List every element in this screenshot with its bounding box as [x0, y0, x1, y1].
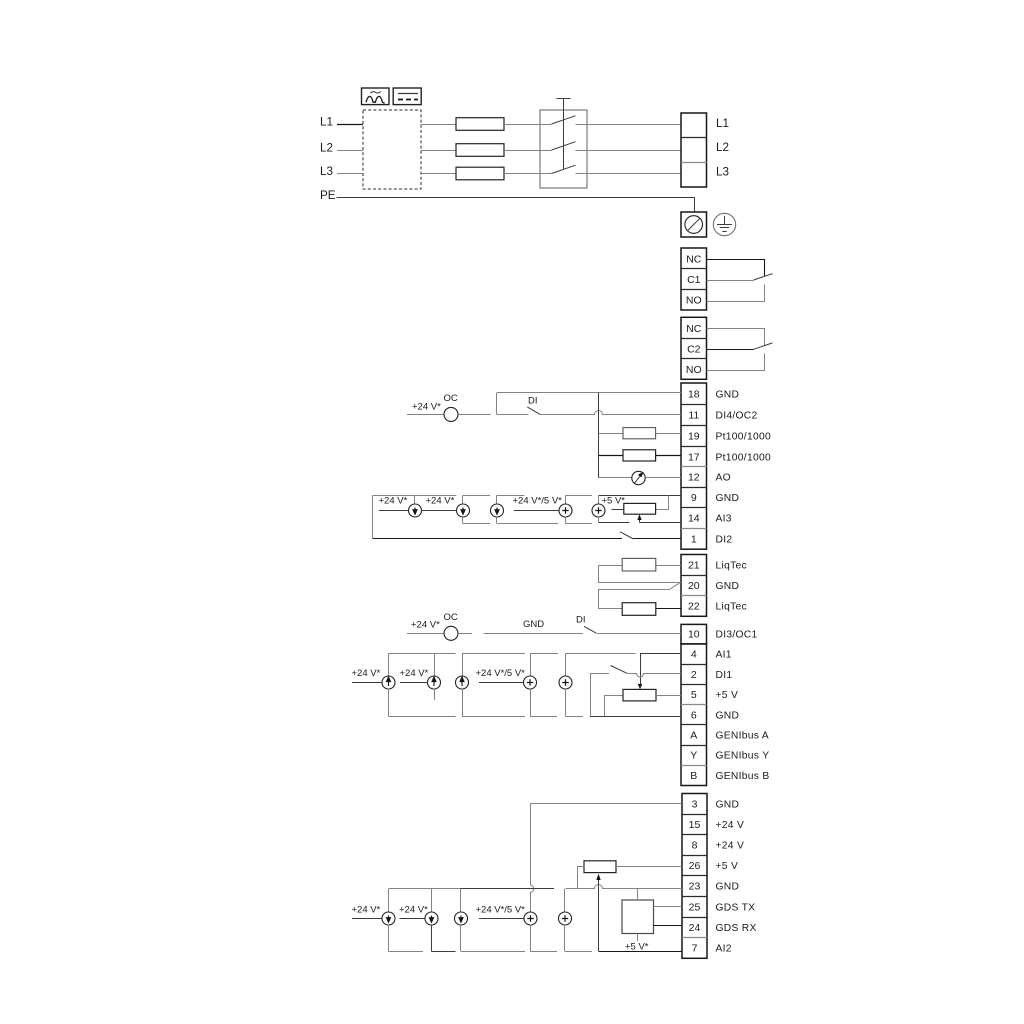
- svg-text:24: 24: [689, 922, 701, 934]
- svg-text:GND: GND: [716, 581, 740, 592]
- svg-text:L2: L2: [320, 142, 333, 155]
- svg-text:OC: OC: [444, 393, 458, 404]
- svg-text:L3: L3: [716, 166, 729, 179]
- svg-text:+24 V*: +24 V*: [352, 668, 381, 679]
- svg-text:10: 10: [688, 629, 700, 641]
- svg-text:+5 V: +5 V: [716, 690, 739, 701]
- svg-text:DI2: DI2: [716, 534, 733, 545]
- svg-text:6: 6: [691, 709, 697, 721]
- svg-text:Pt100/1000: Pt100/1000: [716, 452, 771, 463]
- svg-text:DI: DI: [576, 615, 586, 626]
- svg-text:LiqTec: LiqTec: [716, 561, 747, 572]
- svg-text:NC: NC: [686, 254, 702, 266]
- svg-text:DI1: DI1: [716, 670, 733, 681]
- svg-text:GENIbus A: GENIbus A: [716, 731, 769, 742]
- svg-text:L1: L1: [320, 116, 333, 129]
- svg-text:11: 11: [688, 410, 699, 422]
- svg-text:26: 26: [689, 860, 701, 872]
- svg-text:NC: NC: [686, 323, 702, 335]
- svg-text:25: 25: [689, 901, 701, 913]
- svg-text:LiqTec: LiqTec: [716, 602, 747, 613]
- svg-text:20: 20: [688, 580, 700, 592]
- svg-text:1: 1: [691, 533, 697, 545]
- svg-text:+24 V*/5 V*: +24 V*/5 V*: [476, 905, 526, 916]
- svg-text:17: 17: [688, 451, 700, 463]
- svg-text:+24 V*: +24 V*: [379, 496, 408, 507]
- svg-text:L3: L3: [320, 165, 333, 178]
- svg-text:AI2: AI2: [716, 944, 732, 955]
- svg-text:A: A: [690, 730, 697, 742]
- svg-text:+24 V*: +24 V*: [400, 668, 429, 679]
- svg-text:B: B: [690, 770, 697, 782]
- svg-text:9: 9: [691, 492, 697, 504]
- svg-text:GENIbus B: GENIbus B: [716, 771, 770, 782]
- svg-text:+24 V*: +24 V*: [426, 496, 455, 507]
- svg-text:GND: GND: [716, 493, 740, 504]
- svg-text:C2: C2: [687, 343, 701, 355]
- svg-text:21: 21: [688, 560, 700, 572]
- svg-text:+5 V*: +5 V*: [625, 942, 649, 953]
- svg-text:+24 V*/5 V*: +24 V*/5 V*: [513, 496, 563, 507]
- svg-text:GDS RX: GDS RX: [716, 923, 757, 934]
- svg-text:AI3: AI3: [716, 514, 732, 525]
- svg-text:+24 V*/5 V*: +24 V*/5 V*: [476, 668, 526, 679]
- svg-text:DI4/OC2: DI4/OC2: [716, 411, 758, 422]
- svg-text:19: 19: [688, 431, 700, 443]
- svg-text:GENIbus Y: GENIbus Y: [716, 751, 770, 762]
- svg-text:DI: DI: [528, 396, 538, 407]
- svg-text:GND: GND: [716, 799, 740, 810]
- svg-text:18: 18: [688, 388, 700, 400]
- svg-text:+24 V*: +24 V*: [412, 402, 441, 413]
- svg-text:C1: C1: [687, 274, 701, 286]
- svg-text:PE: PE: [320, 189, 336, 202]
- svg-text:+24 V*: +24 V*: [399, 905, 428, 916]
- svg-text:GND: GND: [523, 619, 544, 630]
- svg-text:+5 V: +5 V: [716, 861, 739, 872]
- svg-text:Y: Y: [690, 750, 697, 762]
- svg-text:14: 14: [688, 513, 700, 525]
- svg-text:+24 V*: +24 V*: [411, 620, 440, 631]
- svg-text:DI3/OC1: DI3/OC1: [716, 630, 758, 641]
- svg-text:3: 3: [692, 798, 698, 810]
- svg-text:+24 V: +24 V: [716, 841, 745, 852]
- svg-text:AO: AO: [716, 473, 731, 484]
- svg-text:7: 7: [692, 943, 698, 955]
- svg-text:GND: GND: [716, 882, 740, 893]
- svg-text:GND: GND: [716, 389, 740, 400]
- svg-text:+24 V: +24 V: [716, 820, 745, 831]
- svg-text:22: 22: [688, 601, 700, 613]
- svg-text:15: 15: [689, 819, 701, 831]
- svg-text:L2: L2: [716, 141, 729, 154]
- svg-text:L1: L1: [716, 117, 729, 130]
- svg-text:AI1: AI1: [716, 650, 732, 661]
- svg-text:2: 2: [691, 669, 697, 681]
- svg-text:5: 5: [691, 689, 697, 701]
- svg-text:Pt100/1000: Pt100/1000: [716, 432, 771, 443]
- svg-text:+5 V*: +5 V*: [602, 496, 626, 507]
- svg-text:GND: GND: [716, 710, 740, 721]
- svg-text:8: 8: [692, 840, 698, 852]
- svg-text:OC: OC: [444, 612, 458, 623]
- svg-text:4: 4: [691, 649, 697, 661]
- svg-text:12: 12: [688, 472, 700, 484]
- svg-text:NO: NO: [686, 364, 702, 376]
- svg-text:+24 V*: +24 V*: [352, 905, 381, 916]
- svg-text:23: 23: [689, 881, 701, 893]
- svg-text:NO: NO: [686, 295, 702, 307]
- svg-text:GDS TX: GDS TX: [716, 902, 756, 913]
